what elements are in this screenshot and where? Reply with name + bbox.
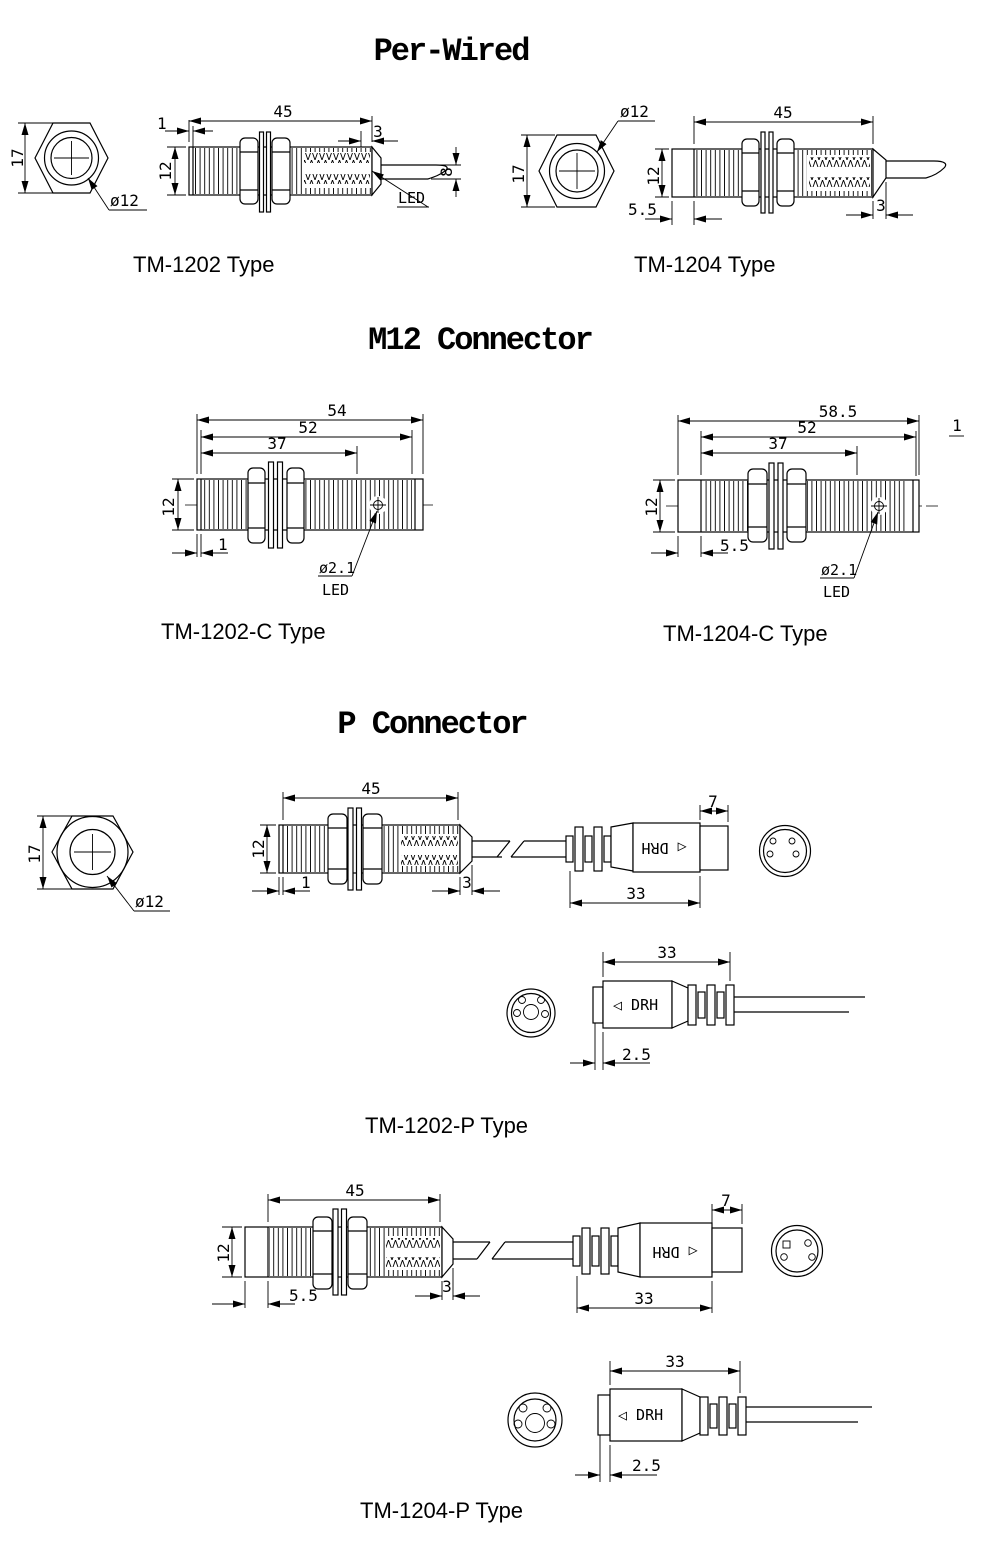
dim-dia: 12 [159, 497, 178, 516]
dim-socket-cap: 2.5 [622, 1045, 651, 1064]
plug-pin-view [772, 1226, 823, 1277]
dim-dia: 12 [642, 497, 661, 516]
washer [269, 462, 274, 548]
dim-thread: 37 [267, 434, 286, 453]
drawing-sheet: Per-Wired M12 Connector P Connector 17 ø… [0, 0, 995, 1547]
dim-plug-len: 33 [626, 884, 645, 903]
dim-body-dia: 12 [249, 839, 268, 858]
washer [769, 132, 773, 213]
hex-nut [777, 139, 794, 206]
dim-head: 5.5 [628, 200, 657, 219]
hex-nut [348, 1217, 367, 1289]
hex-nut [287, 468, 304, 543]
tm1204p-view: ◁ DRH 45 12 5.5 3 7 33 [212, 1181, 823, 1313]
washer [761, 132, 765, 213]
cable [886, 161, 934, 178]
cable-with-break [453, 1242, 573, 1259]
dim-body-dia: 12 [156, 161, 175, 180]
dim-plug-cap: 7 [708, 792, 718, 811]
dim-head: 5.5 [720, 536, 749, 555]
dim-body: 52 [298, 418, 317, 437]
socket-pin-view [507, 989, 555, 1037]
hex-nut [240, 138, 258, 204]
socket-pin-view [508, 1393, 562, 1447]
dim-plug-cap: 7 [721, 1191, 731, 1210]
socket-center-hole [524, 1005, 539, 1020]
plug-pin-view [760, 826, 811, 877]
dim-thread: 37 [768, 434, 787, 453]
dim-overall: 58.5 [819, 402, 858, 421]
hex-nut [787, 469, 806, 542]
dim-rear: 3 [876, 196, 886, 215]
dim-rear: 3 [442, 1277, 452, 1296]
type-label: TM-1204-C Type [663, 621, 828, 646]
socket-hole [543, 1404, 551, 1412]
socket-hole [542, 1011, 549, 1018]
dim-socket-len: 33 [665, 1352, 684, 1371]
hex-nut [742, 139, 759, 206]
p-front-view: 17 ø12 [25, 816, 170, 911]
hex-nut [248, 468, 265, 543]
section-title-m12: M12 Connector [368, 322, 592, 359]
tm1202p-view: ◁ DRH 45 1 3 12 7 33 [249, 779, 811, 908]
plug-cap [712, 1228, 742, 1272]
pin [767, 851, 773, 857]
cable-boot [372, 147, 381, 195]
tm1204p-socket-view: ◁ DRH 33 2.5 TM-1204-P Type [360, 1352, 872, 1523]
dim-tip: 1 [301, 873, 311, 892]
cable [734, 997, 865, 1012]
tm1204-side-view: 45 12 5.5 3 TM-1204 Type [628, 103, 946, 277]
dim-cable-dia: 8 [437, 167, 456, 177]
pin [809, 1254, 816, 1261]
washer [278, 462, 283, 548]
tm1202-side-view: 45 1 3 12 8 LED TM-1202 Type [133, 102, 461, 277]
cable [746, 1407, 872, 1422]
dim-tip: 1 [218, 535, 228, 554]
section-title-per-wired: Per-Wired [374, 33, 530, 70]
washer [260, 132, 264, 212]
hex-nut [748, 469, 767, 542]
socket-center-hole [526, 1414, 545, 1433]
socket-hole [514, 1010, 521, 1017]
socket-hole [519, 1404, 527, 1412]
tm1202c-view: 54 52 37 12 1 ø2.1 LED TM-1202-C Type [159, 401, 437, 644]
washer [333, 1209, 338, 1295]
cable-with-break [472, 841, 566, 857]
dim-body-dia: 12 [214, 1243, 233, 1262]
dim-socket-cap: 2.5 [632, 1456, 661, 1475]
tm1202-front-view: 17 ø12 [8, 123, 147, 210]
dim-across-flats: 17 [509, 164, 528, 183]
dim-length: 45 [345, 1181, 364, 1200]
dim-diameter: ø12 [620, 102, 649, 121]
dim-head: 5.5 [289, 1286, 318, 1305]
type-label: TM-1204-P Type [360, 1498, 523, 1523]
m12-plug: ◁ DRH [573, 1223, 742, 1277]
pin [793, 851, 799, 857]
socket-marking: ◁ DRH [618, 1406, 663, 1424]
tm1204-front-view: 17 ø12 [509, 102, 655, 207]
washer [769, 463, 774, 549]
plug-marking: ◁ DRH [641, 839, 686, 857]
dim-length: 45 [273, 102, 292, 121]
socket-hole [514, 1420, 522, 1428]
socket-hole [519, 997, 526, 1004]
tm1202p-socket-view: ◁ DRH 33 2.5 TM-1202-P Type [365, 943, 865, 1138]
cable-boot [873, 149, 886, 197]
dim-led-dia: ø2.1 [319, 559, 355, 577]
dim-tip: 1 [157, 114, 167, 133]
section-title-p: P Connector [337, 706, 526, 743]
pin [781, 1254, 788, 1261]
cable-boot [460, 825, 472, 873]
socket-marking: ◁ DRH [613, 996, 658, 1014]
dim-across-flats: 17 [8, 148, 27, 167]
hex-nut [328, 814, 347, 884]
pin [805, 1240, 812, 1247]
page-note: 1 [952, 416, 962, 435]
socket-hole [538, 997, 545, 1004]
dim-overall: 54 [327, 401, 346, 420]
type-label: TM-1204 Type [634, 252, 775, 277]
socket-cap [593, 987, 603, 1023]
dim-diameter: ø12 [110, 191, 139, 210]
pin-key [783, 1241, 790, 1248]
socket-cap [598, 1395, 610, 1435]
tm1204c-view: 58.5 52 37 12 5.5 ø2.1 LED 1 TM-1204-C T… [642, 402, 964, 646]
cable-boot [442, 1227, 453, 1277]
cable [381, 165, 436, 179]
washer [267, 132, 271, 212]
technical-drawing: Per-Wired M12 Connector P Connector 17 ø… [0, 0, 995, 1547]
led-label: LED [322, 581, 349, 599]
led-label: LED [823, 583, 850, 601]
dim-length: 45 [361, 779, 380, 798]
pin [770, 838, 776, 844]
dim-across-flats: 17 [25, 844, 44, 863]
type-label: TM-1202 Type [133, 252, 274, 277]
dim-length: 45 [773, 103, 792, 122]
hex-nut [313, 1217, 332, 1289]
led-label: LED [398, 189, 425, 207]
type-label: TM-1202-P Type [365, 1113, 528, 1138]
dim-led-dia: ø2.1 [821, 561, 857, 579]
washer [357, 808, 362, 890]
washer [778, 463, 783, 549]
dim-body-dia: 12 [644, 166, 663, 185]
plug-marking: ◁ DRH [652, 1243, 697, 1261]
dim-rear: 3 [373, 122, 383, 141]
dim-diameter: ø12 [135, 892, 164, 911]
dim-body: 52 [797, 418, 816, 437]
washer [342, 1209, 347, 1295]
dim-socket-len: 33 [657, 943, 676, 962]
hex-nut [272, 138, 290, 204]
plug-cap [700, 826, 728, 870]
hex-nut [363, 814, 382, 884]
type-label: TM-1202-C Type [161, 619, 326, 644]
pin [789, 838, 795, 844]
dim-rear: 3 [462, 873, 472, 892]
m12-plug: ◁ DRH [566, 823, 728, 872]
socket-hole [547, 1420, 555, 1428]
washer [348, 808, 353, 890]
dim-plug-len: 33 [634, 1289, 653, 1308]
